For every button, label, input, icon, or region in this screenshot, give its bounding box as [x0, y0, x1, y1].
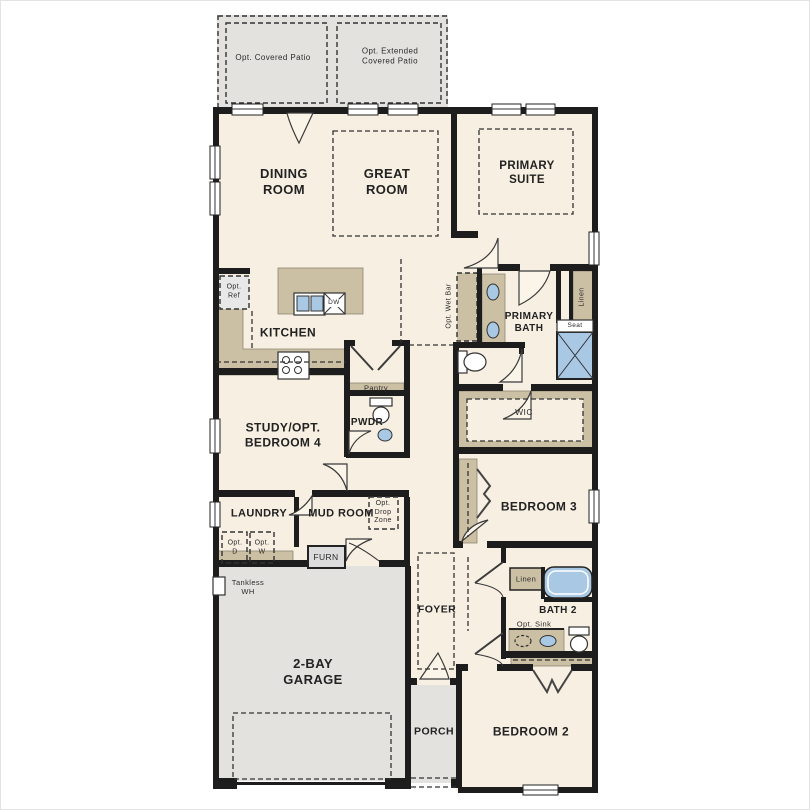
label-opt-covered-patio: Opt. Covered Patio [235, 53, 310, 63]
label-pwdr: PWDR [351, 417, 383, 429]
label-pantry: Pantry [364, 383, 388, 392]
label-bath2: BATH 2 [539, 605, 577, 617]
primary-toilet-icon [458, 351, 486, 373]
label-kitchen: KITCHEN [260, 326, 316, 341]
label-laundry: LAUNDRY [231, 507, 287, 520]
label-porch: PORCH [414, 726, 454, 739]
label-dw: DW [327, 299, 341, 307]
label-great-room: GREAT ROOM [364, 166, 411, 198]
label-opt-sink: Opt. Sink [517, 619, 551, 628]
label-mud-room: MUD ROOM [308, 507, 374, 520]
pwdr-sink-icon [378, 429, 392, 441]
window [210, 146, 220, 179]
window [210, 502, 220, 527]
label-bedroom2: BEDROOM 2 [493, 725, 569, 740]
window [589, 232, 599, 265]
window [589, 490, 599, 523]
floor-plan-svg [1, 1, 810, 810]
window [210, 419, 220, 453]
window [232, 104, 263, 115]
label-linen-bath2: Linen [516, 574, 536, 583]
label-dining-room: DINING ROOM [260, 166, 308, 198]
window [526, 104, 555, 115]
label-opt-w: Opt. W [255, 539, 270, 556]
floor-plan: Opt. Covered Patio Opt. Extended Covered… [0, 0, 810, 810]
bath2-toilet-icon [569, 627, 589, 652]
stove-icon [278, 352, 309, 379]
window [348, 104, 378, 115]
label-opt-wet-bar: Opt. Wet Bar [446, 283, 455, 328]
tankless-wh-icon [213, 577, 225, 595]
bath2-sink-icon [540, 636, 556, 647]
label-opt-d: Opt. D [228, 539, 243, 556]
window [492, 104, 521, 115]
label-primary-suite: PRIMARY SUITE [499, 159, 554, 187]
tub-icon [544, 567, 592, 598]
label-bedroom3: BEDROOM 3 [501, 500, 577, 515]
shower-icon [557, 332, 593, 379]
window [523, 785, 558, 795]
label-opt-ref: Opt. Ref [227, 283, 242, 300]
label-furn: FURN [313, 552, 338, 562]
window [388, 104, 418, 115]
label-linen-primary: Linen [579, 287, 588, 306]
label-wic: WIC [515, 407, 533, 417]
label-opt-drop-zone: Opt. Drop Zone [374, 500, 392, 526]
label-study: STUDY/OPT. BEDROOM 4 [245, 420, 321, 449]
label-primary-bath: PRIMARY BATH [505, 311, 554, 335]
primary-sink-icon [487, 322, 499, 338]
island-sink-bowl [311, 296, 323, 311]
label-garage: 2-BAY GARAGE [283, 656, 342, 688]
label-opt-extended-covered-patio: Opt. Extended Covered Patio [362, 46, 418, 66]
label-seat: Seat [568, 322, 583, 330]
window [210, 182, 220, 215]
primary-sink-icon [487, 284, 499, 300]
island-sink-bowl [297, 296, 309, 311]
label-tankless-wh: Tankless WH [232, 578, 264, 596]
label-foyer: FOYER [418, 604, 456, 617]
opt-wet-bar-counter [457, 273, 477, 341]
